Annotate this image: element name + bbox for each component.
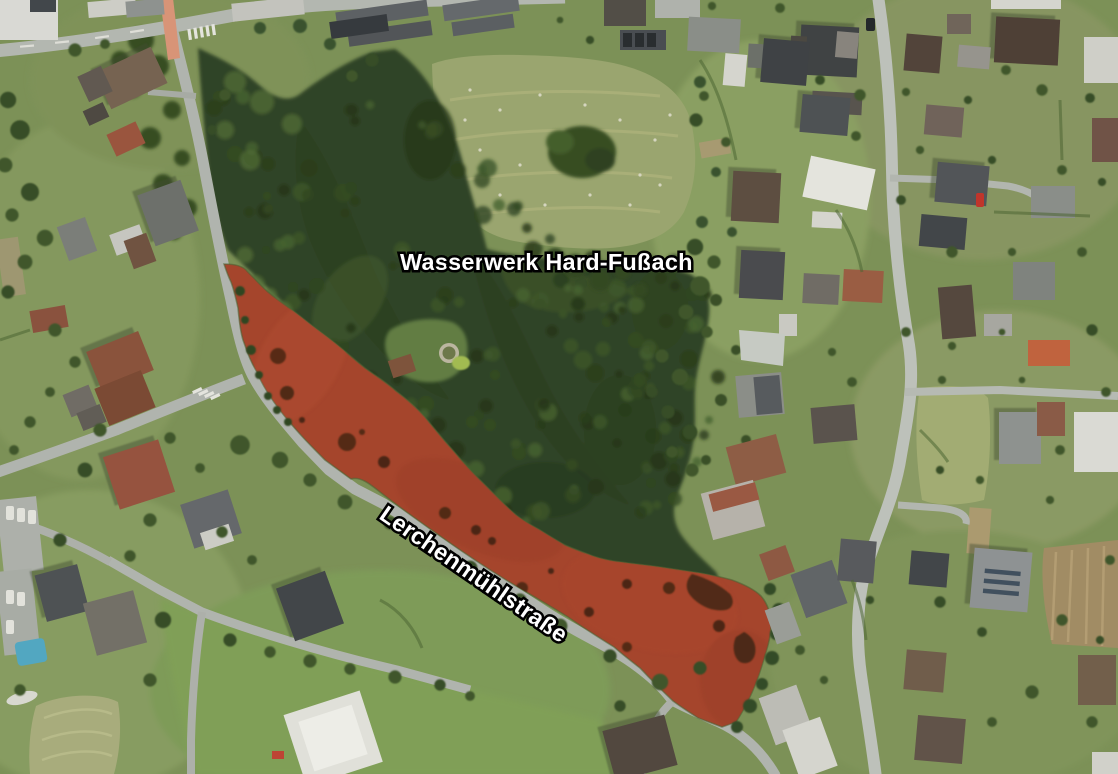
svg-text:Wasserwerk Hard-Fußach: Wasserwerk Hard-Fußach [400,249,693,275]
